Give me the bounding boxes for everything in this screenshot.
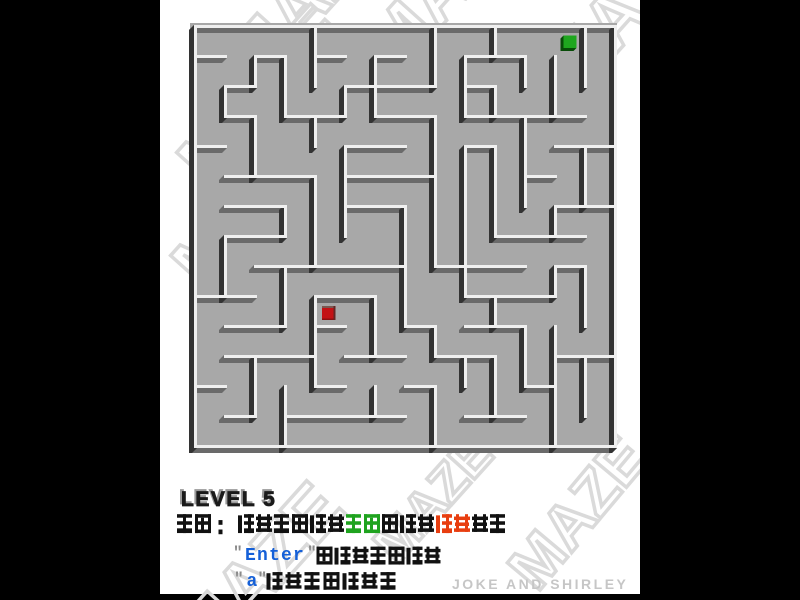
svg-text:": " [258, 570, 268, 588]
svg-text:": " [307, 544, 317, 562]
svg-text:": " [233, 544, 243, 562]
svg-text:a: a [247, 572, 258, 592]
svg-text:": " [234, 570, 244, 588]
svg-text:JOKE AND SHIRLEY: JOKE AND SHIRLEY [452, 576, 628, 592]
svg-text:Enter: Enter [245, 546, 305, 566]
svg-text:LEVEL 5: LEVEL 5 [181, 488, 276, 511]
